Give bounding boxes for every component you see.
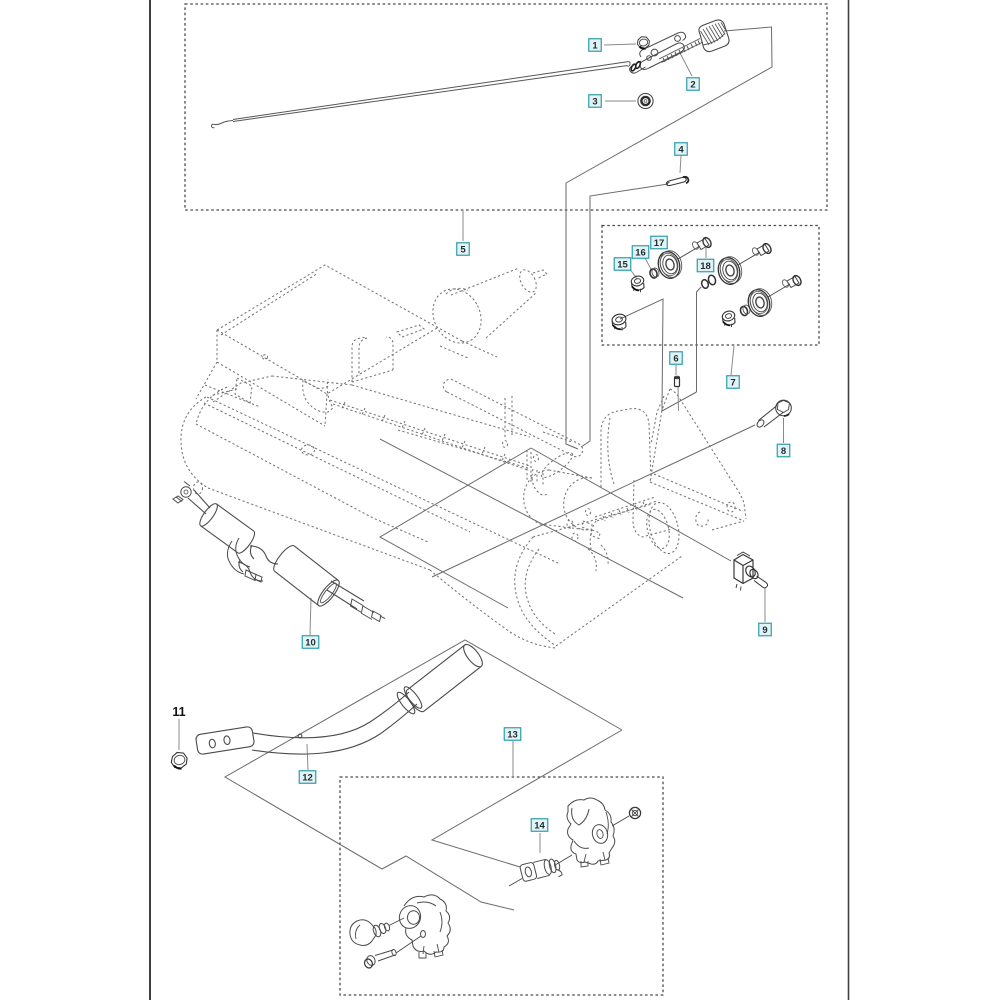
svg-text:16: 16	[635, 247, 646, 258]
svg-text:2: 2	[690, 79, 695, 90]
svg-text:13: 13	[507, 729, 518, 740]
svg-text:18: 18	[700, 261, 711, 272]
svg-text:6: 6	[673, 353, 678, 364]
svg-text:5: 5	[460, 244, 466, 255]
svg-text:8: 8	[781, 446, 786, 457]
svg-text:9: 9	[762, 625, 767, 636]
svg-text:1: 1	[592, 40, 598, 51]
svg-text:4: 4	[678, 144, 684, 155]
svg-text:11: 11	[172, 705, 185, 719]
svg-text:10: 10	[305, 637, 316, 648]
svg-text:7: 7	[730, 377, 735, 388]
svg-text:3: 3	[592, 96, 597, 107]
svg-text:17: 17	[654, 238, 665, 249]
svg-text:14: 14	[534, 820, 545, 831]
svg-text:15: 15	[617, 259, 628, 270]
svg-text:12: 12	[302, 772, 313, 783]
